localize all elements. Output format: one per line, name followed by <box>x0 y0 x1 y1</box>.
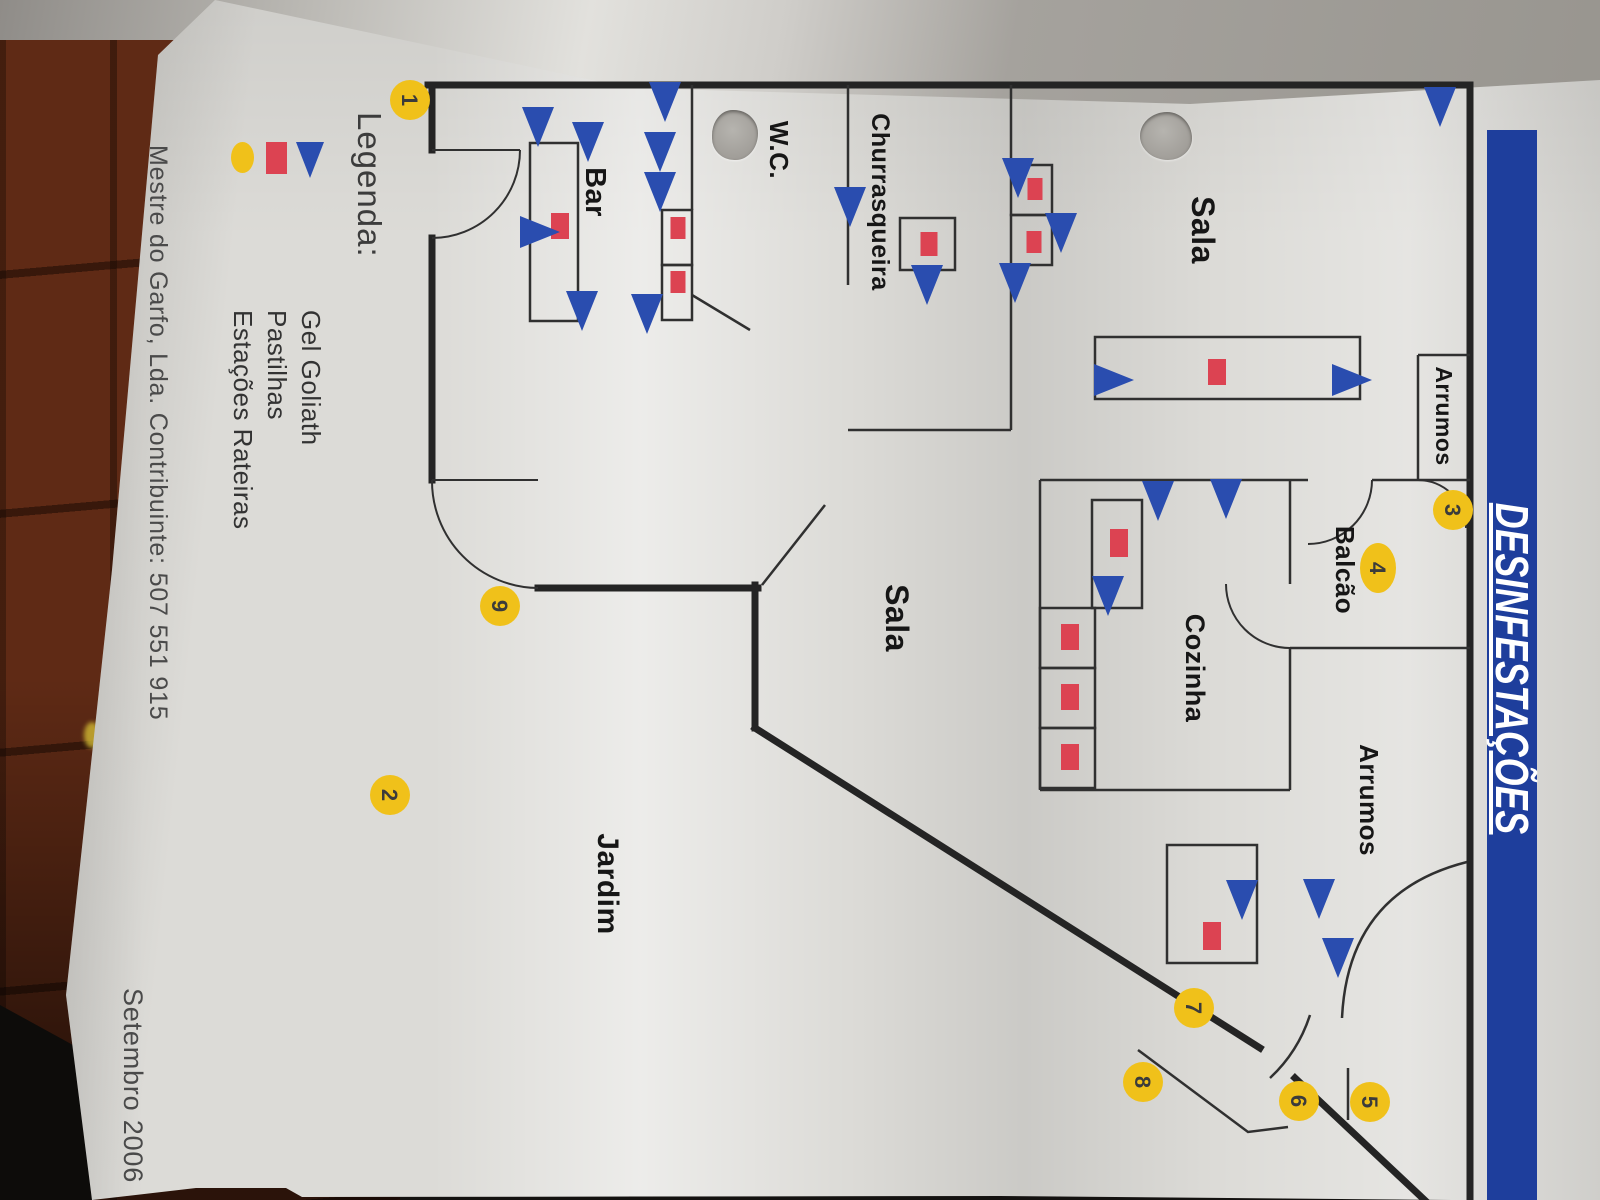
room-label: Jardim <box>591 833 624 934</box>
gel-goliath-marker <box>911 265 943 305</box>
photographed-floor-plan-scene: DESINFESTAÇÕES <box>0 0 1600 1200</box>
gel-goliath-marker <box>1142 481 1174 521</box>
document: DESINFESTAÇÕES <box>60 0 1600 1200</box>
gel-goliath-marker <box>1303 879 1335 919</box>
station-number: 2 <box>377 789 402 801</box>
gel-goliath-marker <box>1210 479 1242 519</box>
room-label: Sala <box>879 584 915 652</box>
room-label: Sala <box>1185 196 1221 264</box>
pastilha-marker <box>1061 624 1079 650</box>
pastilha-marker <box>1027 231 1042 253</box>
room-label: W.C. <box>764 121 794 179</box>
gel-goliath-marker <box>999 263 1031 303</box>
room-label: Churrasqueira <box>866 113 894 291</box>
station-circle: 8 <box>1123 1062 1163 1102</box>
footer-date: Setembro 2006 <box>117 988 148 1183</box>
station-number: 9 <box>487 600 512 612</box>
room-labels: SalaArrumosBalcãoCozinhaArrumosSalaJardi… <box>579 113 1457 934</box>
room-label: Arrumos <box>1354 744 1384 856</box>
triangle-icon <box>296 142 324 178</box>
pastilha-markers <box>551 178 1226 950</box>
legend-item-pastilhas: Pastilhas <box>260 112 294 592</box>
gel-goliath-markers <box>520 82 1456 978</box>
hole-punch <box>1140 112 1192 160</box>
station-circle: 5 <box>1350 1082 1390 1122</box>
station-circle: 1 <box>390 80 430 120</box>
gel-goliath-marker <box>631 294 663 334</box>
legend-label: Gel Goliath <box>295 310 326 446</box>
ellipse-icon <box>231 142 254 173</box>
station-number: 3 <box>1440 504 1465 516</box>
pastilha-marker <box>1203 922 1221 950</box>
pastilha-marker <box>551 213 569 239</box>
gel-goliath-marker <box>644 172 676 212</box>
gel-goliath-marker <box>522 107 554 147</box>
station-circle: 6 <box>1279 1081 1319 1121</box>
gel-goliath-marker <box>1424 87 1456 127</box>
gel-goliath-marker <box>644 132 676 172</box>
station-circle: 3 <box>1433 490 1473 530</box>
station-number: 1 <box>397 94 422 106</box>
station-number: 7 <box>1181 1002 1206 1014</box>
legend-item-gel: Gel Goliath <box>294 112 328 592</box>
station-number: 5 <box>1357 1096 1382 1108</box>
pastilha-marker <box>671 271 686 293</box>
pastilha-marker <box>1061 744 1079 770</box>
gel-goliath-marker <box>649 82 681 122</box>
room-label: Balcão <box>1330 526 1360 614</box>
interior-walls <box>530 85 1470 1132</box>
station-number: 8 <box>1130 1076 1155 1088</box>
gel-goliath-marker <box>1226 880 1258 920</box>
legend-label: Pastilhas <box>261 310 292 420</box>
footer-company: Mestre do Garfo, Lda. Contribuinte: 507 … <box>143 145 172 720</box>
station-number: 4 <box>1365 562 1390 575</box>
gel-goliath-marker <box>1332 364 1372 396</box>
square-icon <box>266 142 287 174</box>
gel-goliath-marker <box>1045 213 1077 253</box>
gel-goliath-marker <box>834 187 866 227</box>
pastilha-marker <box>1028 178 1043 200</box>
room-label: Cozinha <box>1180 614 1210 723</box>
legend-item-estacoes: Estações Rateiras <box>226 112 260 592</box>
legend: Legenda: Gel Goliath Pastilhas Estações … <box>226 112 388 592</box>
room-label: Arrumos <box>1431 366 1457 465</box>
pastilha-marker <box>1208 359 1226 385</box>
hole-punch <box>712 110 758 160</box>
station-circle: 7 <box>1174 988 1214 1028</box>
gel-goliath-marker <box>566 291 598 331</box>
gel-goliath-marker <box>1092 576 1124 616</box>
station-number: 6 <box>1286 1095 1311 1107</box>
pastilha-marker <box>1110 529 1128 557</box>
station-circle: 9 <box>480 586 520 626</box>
station-circle: 2 <box>370 775 410 815</box>
station-circle: 4 <box>1360 543 1396 593</box>
pastilha-marker <box>921 232 938 256</box>
gel-goliath-marker <box>1094 364 1134 396</box>
pastilha-marker <box>671 217 686 239</box>
outer-walls <box>428 85 1470 1200</box>
legend-heading: Legenda: <box>350 112 388 592</box>
room-label: Bar <box>579 167 611 217</box>
legend-label: Estações Rateiras <box>227 310 258 529</box>
pastilha-marker <box>1061 684 1079 710</box>
